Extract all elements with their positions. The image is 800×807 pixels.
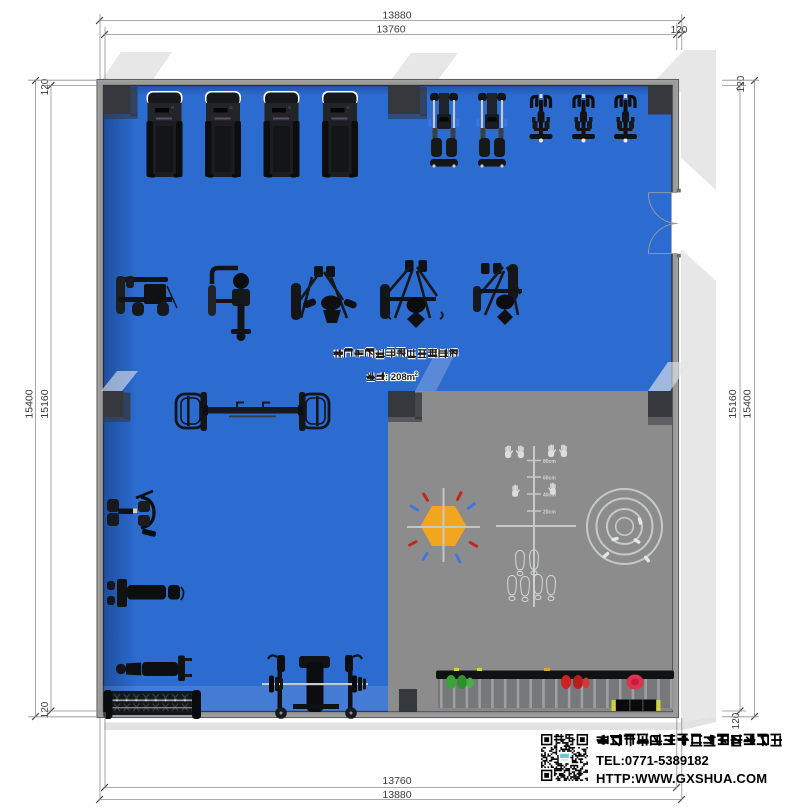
svg-text:13760: 13760	[382, 775, 411, 787]
svg-text:120: 120	[40, 78, 51, 95]
svg-text:: 208m: : 208m	[385, 372, 415, 383]
svg-text:60cm: 60cm	[543, 476, 556, 482]
svg-text:120: 120	[731, 712, 742, 729]
svg-text:120: 120	[736, 75, 747, 92]
svg-text:120: 120	[40, 701, 51, 718]
svg-text:120: 120	[671, 25, 688, 36]
svg-text:15400: 15400	[24, 389, 36, 418]
svg-text:13880: 13880	[382, 10, 411, 22]
svg-text:15160: 15160	[39, 389, 51, 418]
svg-text:15400: 15400	[742, 389, 754, 418]
svg-text:13760: 13760	[376, 24, 405, 36]
svg-text:13880: 13880	[382, 789, 411, 801]
svg-text:HTTP:WWW.GXSHUA.COM: HTTP:WWW.GXSHUA.COM	[596, 771, 767, 786]
svg-text:TEL:0771-5389182: TEL:0771-5389182	[596, 753, 709, 768]
svg-text:15160: 15160	[727, 389, 739, 418]
svg-text:20cm: 20cm	[543, 510, 556, 516]
svg-text:80cm: 80cm	[543, 459, 556, 465]
